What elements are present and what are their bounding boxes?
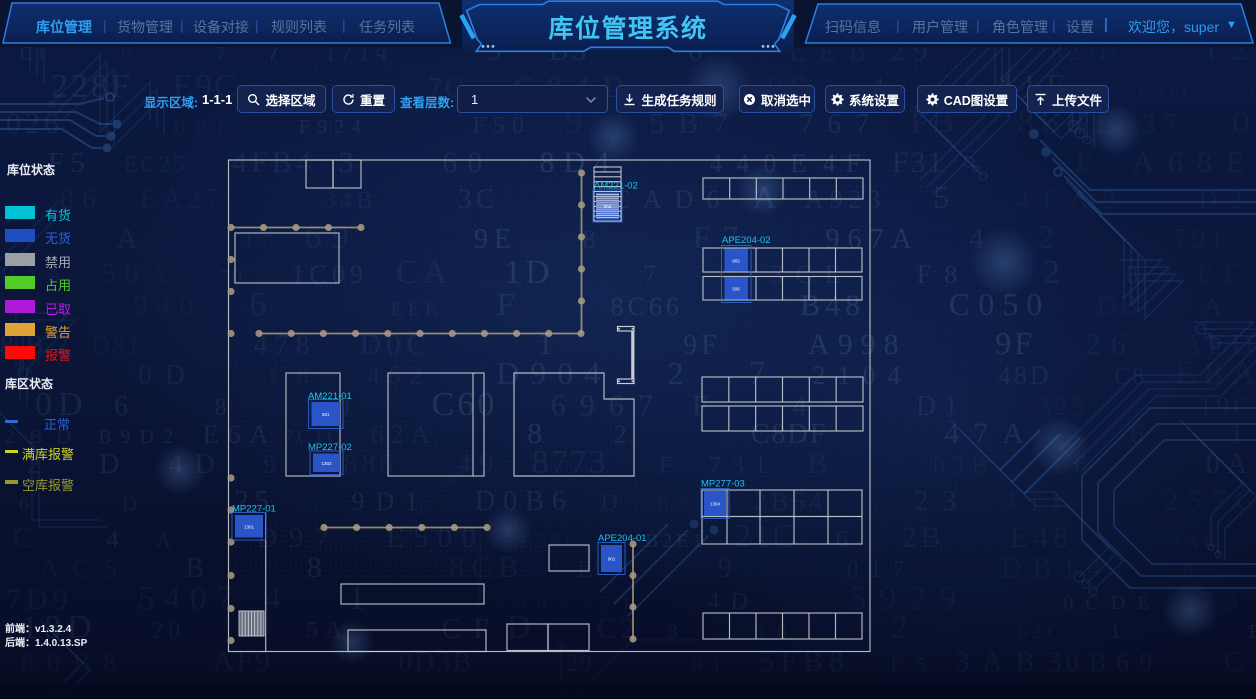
svg-text:1301: 1301 <box>244 524 255 529</box>
svg-text:AM221-01: AM221-01 <box>308 391 352 402</box>
svg-text:APE204-02: APE204-02 <box>722 235 771 246</box>
svg-text:902: 902 <box>732 259 740 264</box>
svg-text:901: 901 <box>608 557 616 562</box>
svg-text:MP277-03: MP277-03 <box>701 479 745 490</box>
svg-text:1304: 1304 <box>710 502 721 507</box>
svg-text:1302: 1302 <box>321 461 332 466</box>
svg-text:501: 501 <box>322 412 330 417</box>
svg-text:AM221-02: AM221-02 <box>594 181 638 192</box>
svg-text:APE204-01: APE204-01 <box>598 533 647 544</box>
svg-text:504: 504 <box>604 204 612 209</box>
svg-text:506: 506 <box>732 287 740 292</box>
svg-text:MP227-02: MP227-02 <box>308 442 352 453</box>
svg-text:MP227-01: MP227-01 <box>232 504 276 515</box>
